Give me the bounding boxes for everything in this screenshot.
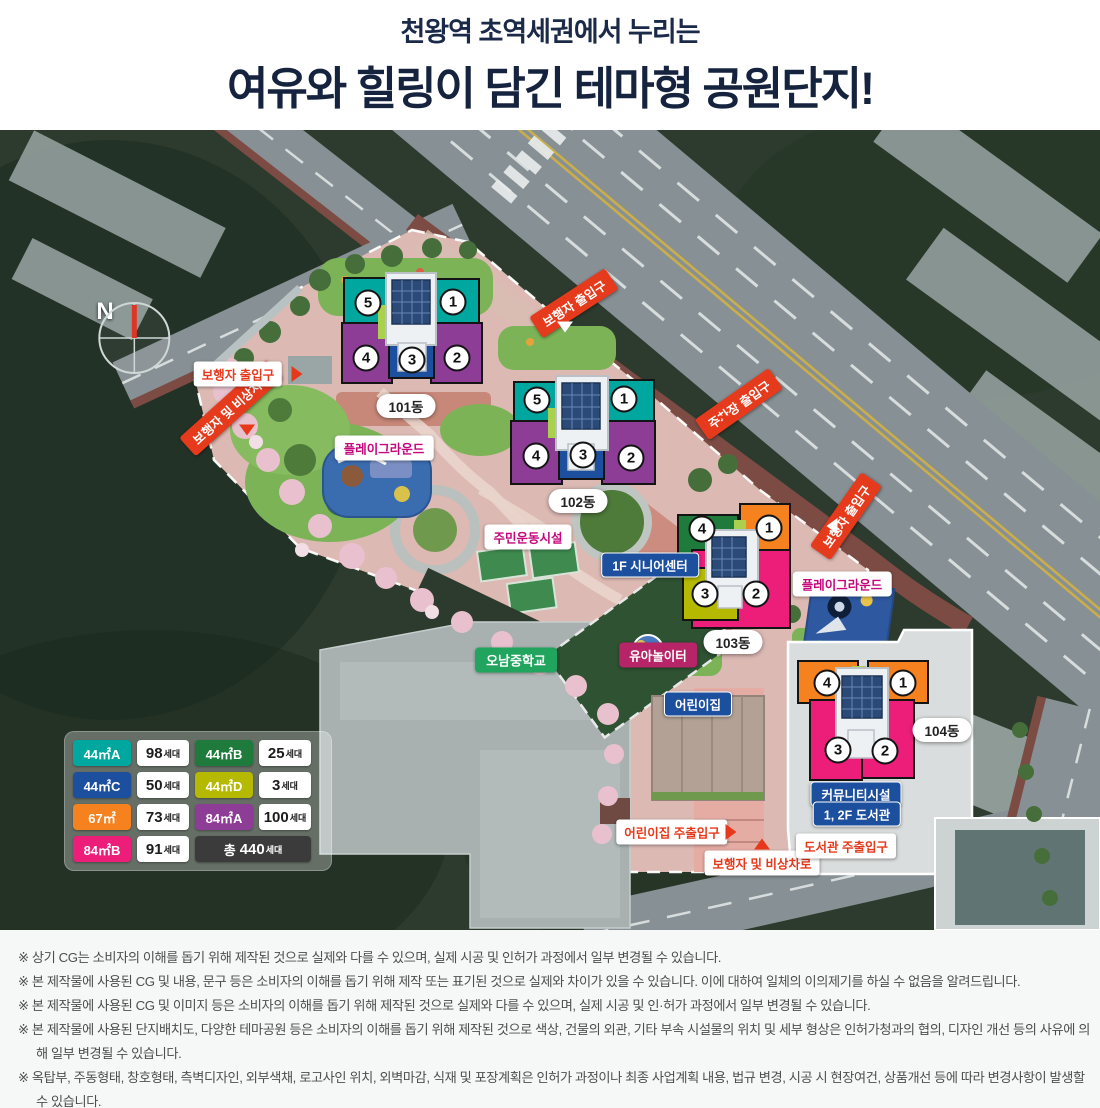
header-subtitle: 천왕역 초역세권에서 누리는 [0, 0, 1100, 49]
compass-rose [96, 300, 172, 376]
playground-badge-2: 플레이그라운드 [793, 572, 892, 597]
unit-circle: 3 [825, 737, 852, 764]
disclaimer-footer: ※ 상기 CG는 소비자의 이해를 돕기 위해 제작된 것으로 실제와 다를 수… [0, 930, 1100, 1108]
disclaimer-line: ※ 본 제작물에 사용된 단지배치도, 다양한 테마공원 등은 소비자의 이해를… [18, 1018, 1096, 1066]
unit-circle: 4 [689, 516, 716, 543]
legend-type-badge: 44㎡B [195, 740, 253, 766]
unit-circle: 2 [618, 445, 645, 472]
daycare-main-entrance-badge: 어린이집 주출입구 [616, 820, 727, 845]
playground-badge-1: 플레이그라운드 [335, 436, 434, 461]
unit-circle: 5 [524, 387, 551, 414]
entrance-arrow-icon [726, 824, 737, 840]
legend-count: 25세대 [259, 740, 311, 766]
building-104-label: 104동 [913, 718, 972, 742]
entrance-arrow-icon [720, 416, 736, 427]
toddler-playground-badge: 유아놀이터 [619, 643, 697, 668]
unit-circle: 1 [611, 386, 638, 413]
legend-type-badge: 84㎡B [73, 836, 131, 862]
page-title: 여유와 힐링이 담긴 테마형 공원단지! [0, 52, 1100, 117]
pedestrian-entrance-badge-left: 보행자 출입구 [194, 362, 282, 387]
disclaimer-line: ※ 상기 CG는 소비자의 이해를 돕기 위해 제작된 것으로 실제와 다를 수… [18, 946, 1096, 970]
entrance-arrow-icon [754, 839, 770, 850]
legend-count: 100세대 [259, 804, 311, 830]
entrance-arrow-icon [557, 322, 573, 333]
unit-circle: 3 [399, 347, 426, 374]
legend-type-badge: 84㎡A [195, 804, 253, 830]
legend-type-badge: 67㎡ [73, 804, 131, 830]
legend-count: 50세대 [137, 772, 189, 798]
building-102-label: 102동 [549, 489, 608, 513]
entrance-arrow-icon [239, 425, 255, 436]
disclaimer-line: ※ 옥탑부, 주동형태, 창호형태, 측벽디자인, 외부색채, 로고사인 위치,… [18, 1066, 1096, 1108]
legend-count: 3세대 [259, 772, 311, 798]
legend-count: 98세대 [137, 740, 189, 766]
library-main-entrance-badge: 도서관 주출입구 [796, 834, 896, 859]
unit-circle: 3 [692, 581, 719, 608]
library-badge: 1, 2F 도서관 [813, 802, 901, 827]
senior-center-badge: 1F 시니어센터 [601, 553, 699, 578]
site-plan-map: N 5 1 4 3 2 5 1 4 3 2 4 1 3 2 4 1 3 2 10… [0, 130, 1100, 930]
building-103-label: 103동 [704, 630, 763, 654]
disclaimer-line: ※ 본 제작물에 사용된 CG 및 내용, 문구 등은 소비자의 이해를 돕기 … [18, 970, 1096, 994]
legend-count: 91세대 [137, 836, 189, 862]
unit-circle: 4 [353, 345, 380, 372]
disclaimer-list: ※ 상기 CG는 소비자의 이해를 돕기 위해 제작된 것으로 실제와 다를 수… [18, 946, 1100, 1108]
unit-circle: 1 [890, 670, 917, 697]
legend-type-badge: 44㎡C [73, 772, 131, 798]
unit-circle: 4 [523, 443, 550, 470]
unit-circle: 1 [756, 515, 783, 542]
unit-circle: 2 [872, 738, 899, 765]
residents-sports-badge: 주민운동시설 [484, 525, 571, 550]
daycare-badge: 어린이집 [664, 692, 732, 717]
site-plan-page: 천왕역 초역세권에서 누리는 여유와 힐링이 담긴 테마형 공원단지! [0, 0, 1100, 1108]
unit-circle: 4 [814, 670, 841, 697]
legend-type-badge: 44㎡D [195, 772, 253, 798]
unit-circle: 1 [440, 289, 467, 316]
unit-circle: 3 [570, 442, 597, 469]
legend-type-badge: 44㎡A [73, 740, 131, 766]
unit-circle: 5 [355, 290, 382, 317]
page-header: 천왕역 초역세권에서 누리는 여유와 힐링이 담긴 테마형 공원단지! [0, 0, 1100, 130]
compass: N [96, 300, 113, 326]
legend-total: 총440세대 [195, 836, 311, 862]
legend-count: 73세대 [137, 804, 189, 830]
entrance-arrow-icon [292, 366, 303, 382]
school-badge: 오남중학교 [475, 648, 557, 673]
unit-type-legend: 44㎡A 98세대 44㎡B 25세대 44㎡C 50세대 44㎡D 3세대 6… [64, 731, 332, 871]
unit-circle: 2 [743, 581, 770, 608]
entrance-arrow-icon [827, 518, 838, 534]
building-101-label: 101동 [377, 394, 436, 418]
disclaimer-line: ※ 본 제작물에 사용된 CG 및 이미지 등은 소비자의 이해를 돕기 위해 … [18, 994, 1096, 1018]
unit-circle: 2 [444, 345, 471, 372]
